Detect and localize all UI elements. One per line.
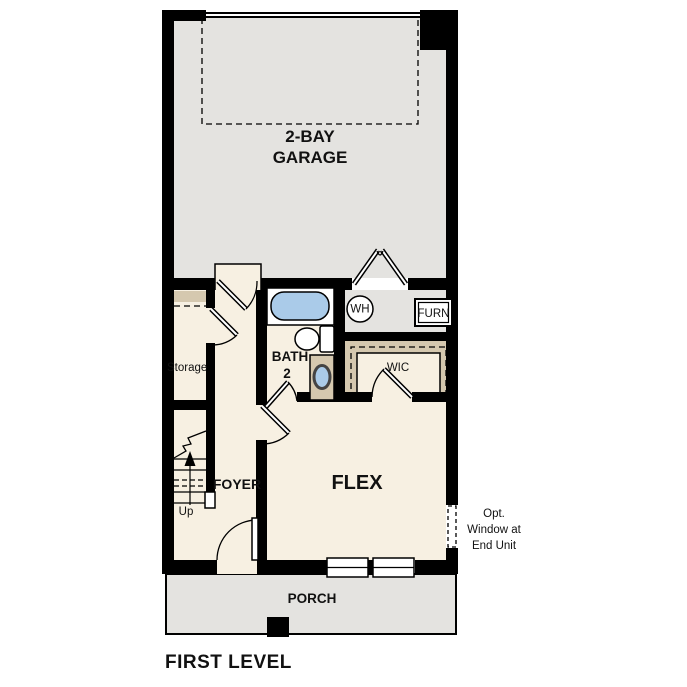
flex-label: FLEX	[331, 472, 383, 494]
garage-label-line2: GARAGE	[273, 148, 348, 167]
furnace-label: FURN	[418, 308, 450, 320]
foyer-label: FOYER	[213, 476, 261, 492]
bath-label-line1: BATH	[272, 349, 309, 364]
water-heater-label: WH	[350, 304, 369, 316]
stair-newel	[205, 492, 215, 508]
garage-label-line1: 2-BAY	[285, 127, 335, 146]
opt-window-annotation-line2: Window at	[467, 524, 521, 536]
sink-icon	[314, 366, 330, 389]
toilet-bowl-icon	[295, 328, 319, 350]
storage-label: Storage	[167, 362, 207, 374]
bath-label-line2: 2	[283, 366, 291, 381]
first-level-title: FIRST LEVEL	[165, 652, 292, 673]
opt-window-annotation-line1: Opt.	[483, 508, 505, 520]
garage-door	[206, 13, 420, 17]
up-label: Up	[179, 506, 194, 518]
storage-shelf-band	[174, 291, 206, 302]
floorplan-svg: 2-BAY GARAGE Storage BATH 2 WIC FOYER FL…	[0, 0, 687, 687]
opt-window-annotation-line3: End Unit	[472, 540, 517, 552]
porch-post	[267, 617, 289, 637]
wic-label: WIC	[387, 362, 409, 374]
porch-label: PORCH	[288, 591, 337, 606]
toilet-tank-icon	[320, 326, 334, 352]
optional-window	[446, 505, 458, 548]
bathtub-icon	[271, 292, 329, 320]
